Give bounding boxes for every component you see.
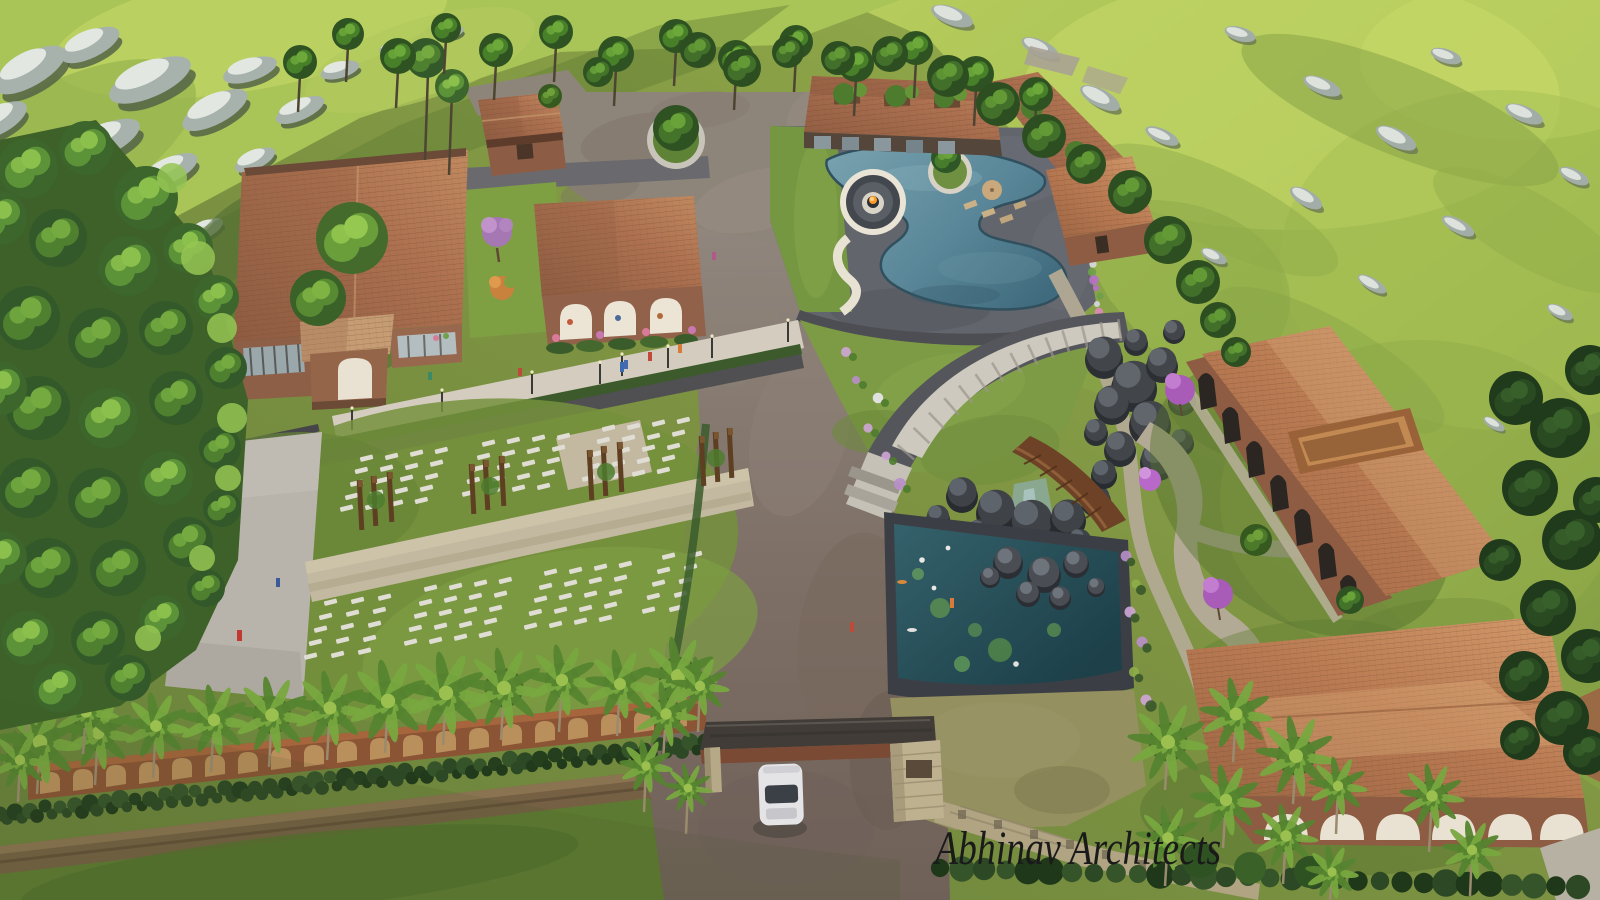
svg-text:Abhinav Architects: Abhinav Architects <box>933 822 1221 875</box>
